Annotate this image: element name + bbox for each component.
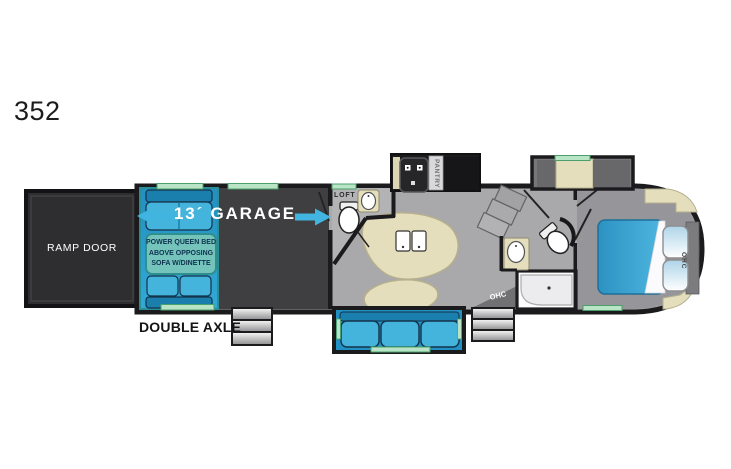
garage-note-line: ABOVE OPPOSING <box>149 249 213 260</box>
sofa-cushion <box>341 321 379 347</box>
garage-label: 13´ GARAGE <box>168 204 302 224</box>
window <box>583 306 622 311</box>
main-bath-sink <box>504 238 529 270</box>
window <box>228 184 278 190</box>
window <box>371 347 430 352</box>
refrigerator <box>444 157 479 190</box>
window <box>458 319 462 339</box>
shower <box>517 271 576 309</box>
window <box>157 184 203 190</box>
window <box>161 305 214 311</box>
pantry-label: PANTRY <box>429 156 443 190</box>
counter-strip <box>393 157 400 189</box>
loft-label: LOFT <box>334 192 355 200</box>
window <box>332 184 356 189</box>
wall-garage-top <box>328 187 333 206</box>
window <box>555 156 590 161</box>
garage-note-line: SOFA W/DINETTE <box>151 259 210 270</box>
wall-bedroom-bottom <box>574 243 578 309</box>
step-tread <box>472 319 514 330</box>
garage-note-line: POWER QUEEN BED <box>146 238 216 249</box>
wardrobe-slideout <box>532 157 633 189</box>
wall-sink-left <box>500 236 504 271</box>
step-tread <box>472 308 514 319</box>
step-tread <box>472 330 514 341</box>
sofa-cushion <box>381 321 419 347</box>
shower-drain <box>547 286 550 289</box>
wall-half-bath-horizontal <box>366 216 395 218</box>
sofa-cushion <box>421 321 459 347</box>
stove-cooktop <box>400 158 428 192</box>
floorplan-page: 352 RAMP DOOR 13´ GARAGE POWER QUEEN BED… <box>0 0 731 469</box>
sofa-slideout <box>334 308 464 352</box>
window <box>337 319 341 339</box>
sofa-back <box>340 312 459 321</box>
garage-note: POWER QUEEN BED ABOVE OPPOSING SOFA W/DI… <box>145 233 217 275</box>
ohc-bedroom-label: OHC <box>677 244 689 278</box>
wardrobe-left <box>537 160 556 187</box>
model-number: 352 <box>14 95 61 127</box>
half-bath-toilet <box>339 202 359 233</box>
half-bath-sink <box>358 190 379 212</box>
entry-steps-main <box>472 308 514 341</box>
ramp-door-label: RAMP DOOR <box>26 191 138 306</box>
double-axle-label: DOUBLE AXLE <box>139 319 241 336</box>
wall-garage-bottom <box>328 230 333 309</box>
wardrobe-cabinet <box>556 159 593 188</box>
wardrobe-right <box>593 160 630 187</box>
